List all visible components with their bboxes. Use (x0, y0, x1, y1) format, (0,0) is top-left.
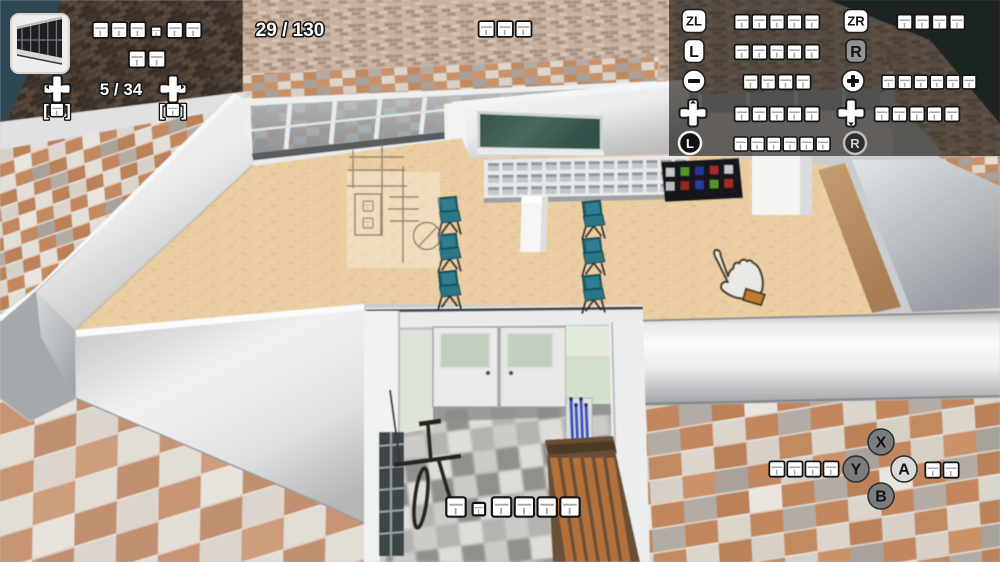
svg-text:L: L (689, 44, 699, 61)
svg-text:ZL: ZL (686, 14, 702, 29)
svg-text:5 / 34: 5 / 34 (100, 80, 143, 99)
svg-text:ZR: ZR (847, 14, 865, 29)
svg-text:L: L (686, 136, 694, 151)
svg-text:X: X (876, 435, 887, 452)
svg-text:R: R (850, 136, 860, 151)
svg-text:Y: Y (851, 462, 862, 479)
svg-text:]: ] (181, 101, 187, 120)
svg-text:A: A (898, 462, 910, 479)
svg-text:B: B (875, 489, 887, 506)
svg-text:29 / 130: 29 / 130 (256, 20, 325, 41)
svg-text:]: ] (65, 101, 71, 120)
svg-text:[: [ (159, 101, 165, 120)
svg-text:[: [ (43, 101, 49, 120)
svg-text:R: R (850, 44, 862, 61)
